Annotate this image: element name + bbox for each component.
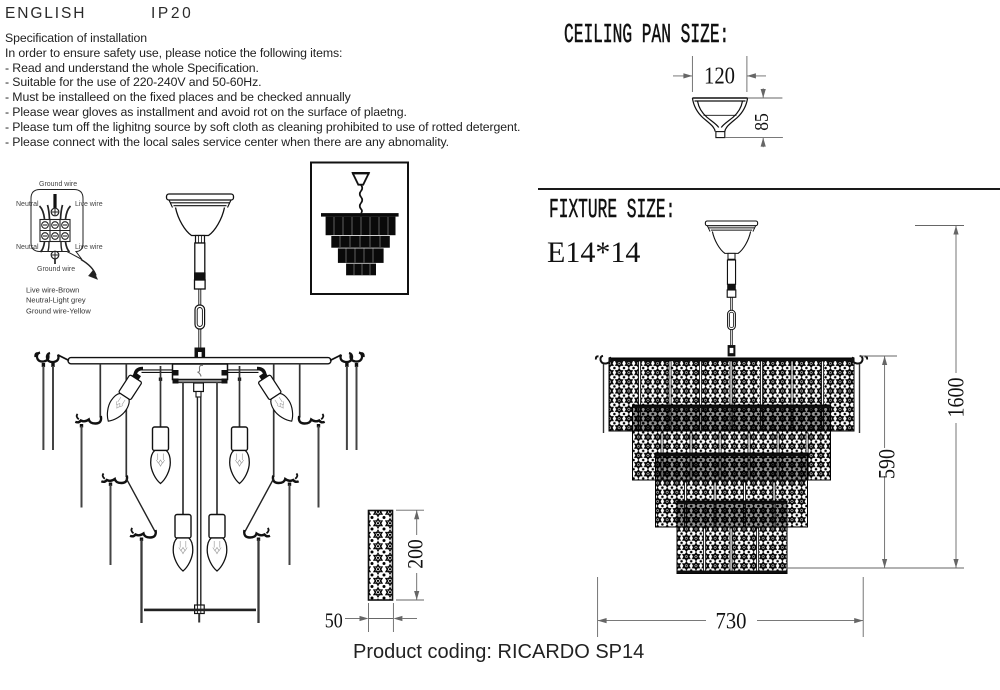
svg-text:1600: 1600 (944, 378, 970, 418)
svg-text:50: 50 (325, 609, 343, 633)
svg-text:85: 85 (751, 113, 773, 131)
svg-text:590: 590 (875, 449, 901, 479)
svg-text:120: 120 (704, 64, 735, 90)
svg-text:200: 200 (403, 539, 428, 569)
svg-text:730: 730 (716, 609, 747, 634)
